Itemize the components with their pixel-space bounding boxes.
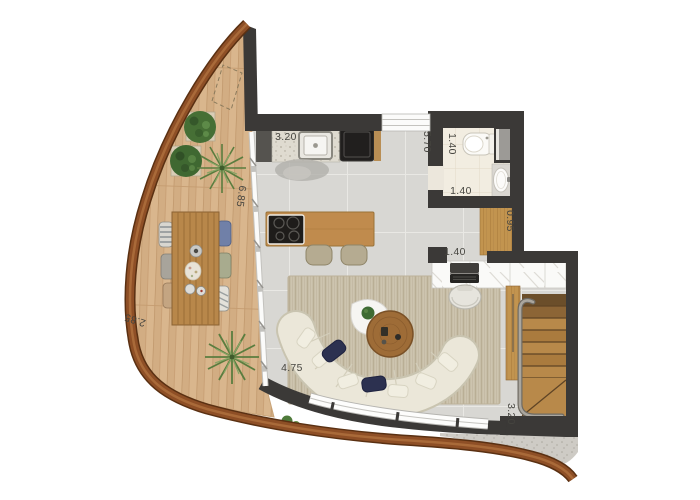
dim-kitchen-depth: 5.70: [421, 131, 432, 153]
centerpiece: [185, 262, 201, 280]
bush-plant: [184, 111, 216, 143]
cooktop: [268, 215, 304, 244]
counter-wood-end-panel: [374, 128, 381, 161]
coffee-table: [367, 311, 413, 357]
dark-appliance: [340, 128, 374, 161]
dining-chair-striped: [159, 222, 173, 247]
dim-living-width: 4.75: [281, 363, 303, 374]
bush-plant: [170, 145, 202, 177]
desk-chair: [449, 285, 481, 309]
right-exterior-wall: [566, 251, 578, 437]
bathroom-sink: [492, 164, 512, 197]
floor-plan-drawing: 3.20 5.70 1.40 1.40 0.95 1.40 6.85 2.85 …: [0, 0, 700, 500]
laptop: [450, 263, 479, 283]
kitchen-sink: [299, 128, 332, 160]
bathroom-bottom-wall: [428, 196, 517, 208]
bar-stool: [341, 245, 367, 265]
dining-table: [172, 212, 219, 325]
floor-plan-canvas: 3.20 5.70 1.40 1.40 0.95 1.40 6.85 2.85 …: [0, 0, 700, 500]
shower: [494, 126, 512, 163]
kitchen-top-wall: [245, 114, 382, 131]
bathroom-right-wall: [510, 111, 524, 208]
dim-stairs-depth: 3.20: [505, 403, 516, 425]
study-top-wall: [487, 251, 578, 263]
bathroom-top-wall: [428, 111, 524, 128]
kitchen-window: [382, 114, 430, 131]
dim-bath-width: 1.40: [450, 186, 472, 197]
navy-pillow: [361, 375, 387, 392]
dim-hall-width: 0.95: [504, 210, 515, 232]
dim-desk-width: 1.40: [444, 247, 466, 258]
bar-stool: [306, 245, 332, 265]
toilet: [463, 133, 497, 155]
counter-dark-cabinet: [256, 128, 272, 162]
table-plant: [362, 307, 375, 320]
dim-kitchen-counter: 3.20: [275, 132, 297, 143]
dining-set: [159, 212, 231, 325]
dim-bath-depth: 1.40: [446, 133, 457, 155]
bathroom-doorway: [428, 164, 444, 191]
plate: [185, 284, 195, 294]
